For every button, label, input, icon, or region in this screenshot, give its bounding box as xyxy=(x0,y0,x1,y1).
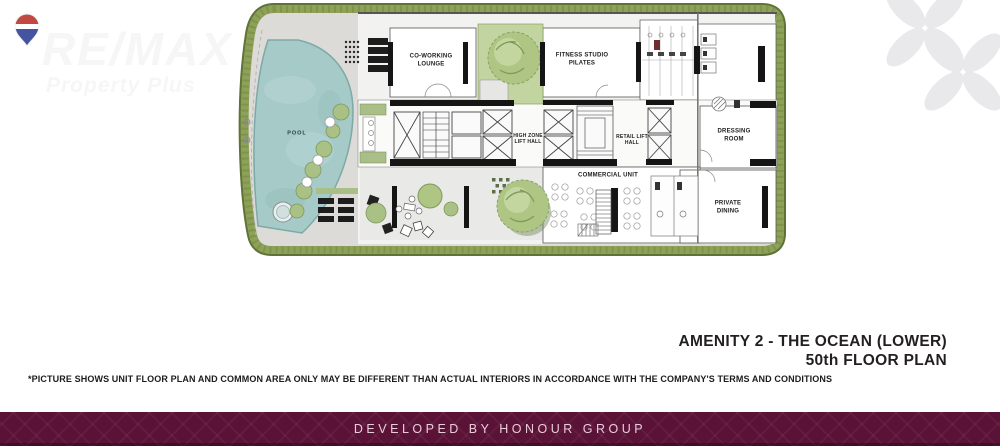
label-private-dining: PRIVATE DINING xyxy=(706,201,750,216)
label-fitness-studio: FITNESS STUDIO PILATES xyxy=(551,53,613,68)
remax-balloon-icon xyxy=(12,12,42,48)
stair-core xyxy=(577,106,613,160)
courtyard-planter xyxy=(478,24,543,104)
developer-credit: DEVELOPED BY HONOUR GROUP xyxy=(354,422,646,436)
label-dressing-room: DRESSING ROOM xyxy=(710,129,758,144)
plan-title: AMENITY 2 - THE OCEAN (LOWER) 50th FLOOR… xyxy=(679,333,947,370)
remax-logo: RE/MAX Property Plus xyxy=(12,12,232,107)
label-coworking-lounge: CO-WORKING LOUNGE xyxy=(402,54,460,69)
label-high-zone-lift-hall: HIGH ZONE LIFT HALL xyxy=(508,133,548,146)
label-retail-lift-hall: RETAIL LIFT HALL xyxy=(616,134,648,147)
commercial-restroom xyxy=(651,176,698,236)
label-pool: POOL xyxy=(277,131,317,138)
tree-icon xyxy=(488,32,540,84)
stair-left xyxy=(423,112,449,158)
footer-bar: DEVELOPED BY HONOUR GROUP xyxy=(0,412,1000,446)
plan-title-line2: 50th FLOOR PLAN xyxy=(679,352,947,371)
remax-wordmark: RE/MAX xyxy=(42,22,233,76)
plan-title-line1: AMENITY 2 - THE OCEAN (LOWER) xyxy=(679,333,947,352)
petal-watermark-icon xyxy=(850,0,1000,170)
remax-subtitle: Property Plus xyxy=(46,74,196,98)
label-commercial-unit: COMMERCIAL UNIT xyxy=(548,172,668,180)
page: RE/MAX Property Plus xyxy=(0,0,1000,446)
disclaimer-text: *PICTURE SHOWS UNIT FLOOR PLAN AND COMMO… xyxy=(28,374,832,384)
